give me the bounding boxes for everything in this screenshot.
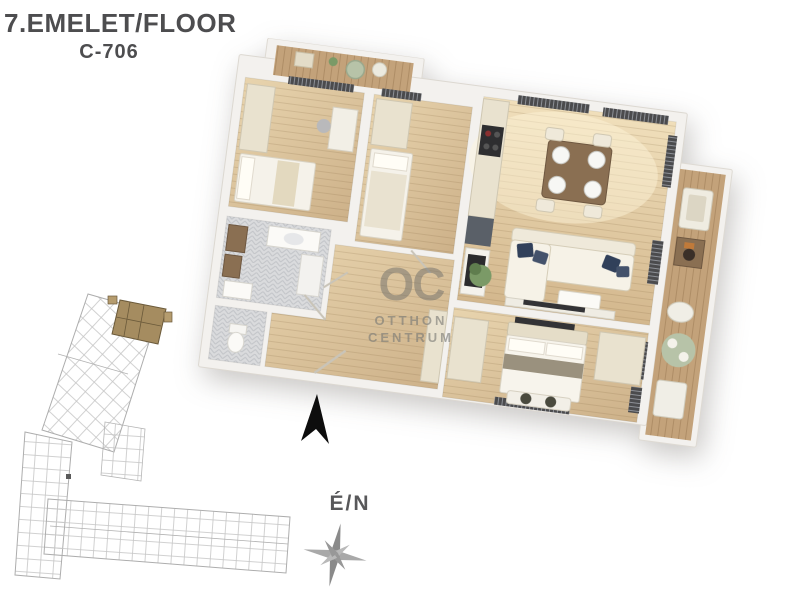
floor-plan-page: 7.EMELET/FLOOR C-706 xyxy=(0,0,800,600)
compass: É/N xyxy=(286,492,396,600)
unit-number: C-706 xyxy=(4,41,214,64)
header: 7.EMELET/FLOOR C-706 xyxy=(4,8,214,64)
site-plan-drawing xyxy=(8,284,300,586)
site-plan xyxy=(8,284,300,591)
compass-rose-icon xyxy=(286,516,396,600)
page-title: 7.EMELET/FLOOR xyxy=(4,8,214,39)
compass-label: É/N xyxy=(304,492,396,516)
